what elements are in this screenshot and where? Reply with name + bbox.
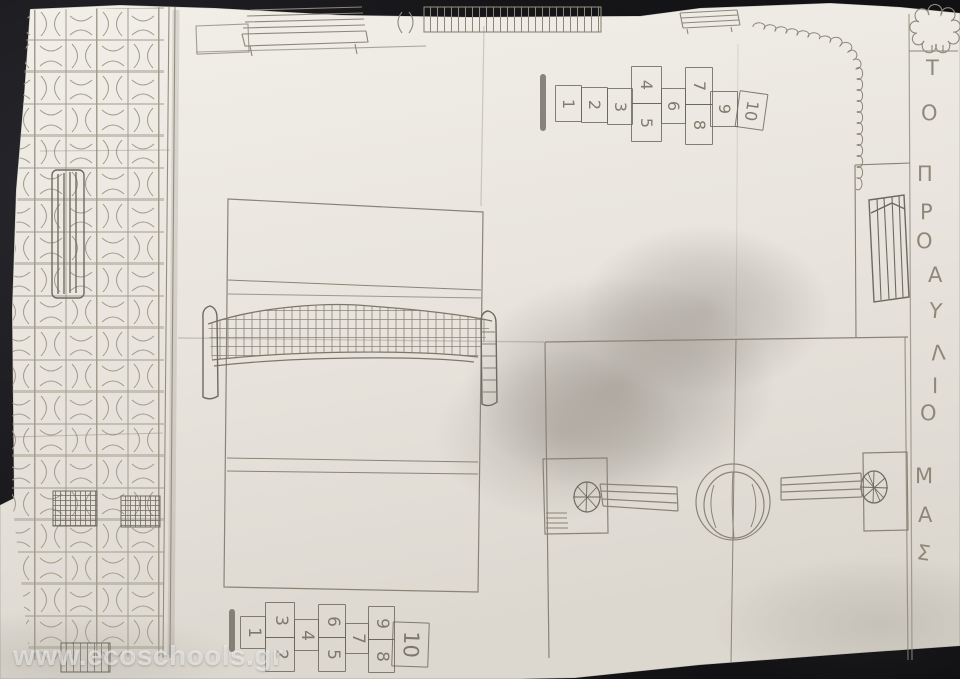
title-letter: Ο <box>920 403 937 424</box>
hopscotch-cell: 5 <box>318 637 346 672</box>
hopscotch-cell: 9 <box>368 606 395 640</box>
hopscotch-cell: 7 <box>345 623 369 654</box>
hopscotch-number: 8 <box>691 119 707 129</box>
hopscotch-cell: 8 <box>685 104 713 145</box>
hopscotch-number: 1 <box>244 627 261 638</box>
title-letter: Ι <box>932 376 938 397</box>
title-letter: Υ <box>928 300 943 322</box>
hopscotch-cell: 6 <box>318 604 346 638</box>
hopscotch-cell: 1 <box>555 85 582 122</box>
tiled-path <box>12 7 175 660</box>
hopscotch-number: 3 <box>271 615 288 626</box>
hopscotch-number: 9 <box>716 104 732 114</box>
photo-of-schoolyard-drawing: 1 2 3 4 5 6 7 8 9 10 1 2 3 4 5 6 7 8 9 1… <box>0 0 960 679</box>
hopscotch-cell: 4 <box>294 619 319 651</box>
title-letter: Α <box>928 265 942 286</box>
hopscotch-number: 5 <box>639 117 655 127</box>
hopscotch-cell: 2 <box>581 87 608 123</box>
hopscotch-cell: 3 <box>607 88 633 125</box>
title-letter: Π <box>917 164 933 185</box>
hopscotch-cell: 7 <box>685 67 713 105</box>
hopscotch-number: 7 <box>348 633 365 644</box>
drawing-svg <box>0 0 960 679</box>
hopscotch-cell: 5 <box>631 103 662 142</box>
hopscotch-cell: 3 <box>265 602 295 638</box>
title-letter: Ο <box>916 231 933 252</box>
fence-grate <box>424 7 601 32</box>
hopscotch-cell: 6 <box>661 88 686 124</box>
title-letter: Μ <box>915 466 933 487</box>
title-letter: Ο <box>921 103 938 124</box>
hopscotch-cell: 10 <box>391 621 430 667</box>
hopscotch-number: 3 <box>612 101 628 111</box>
title-letter: Τ <box>926 58 939 79</box>
hopscotch-number: 6 <box>323 616 340 627</box>
title-letter: Λ <box>930 342 946 364</box>
hopscotch-number: 5 <box>323 649 340 660</box>
title-letter: Ρ <box>920 202 933 223</box>
hopscotch-number: 7 <box>691 81 707 91</box>
hopscotch-number: 4 <box>639 80 655 90</box>
hopscotch-cell: 4 <box>631 66 662 104</box>
hopscotch-number: 8 <box>373 651 390 662</box>
title-letter: Α <box>918 505 932 526</box>
hopscotch-number: 1 <box>561 98 577 108</box>
hopscotch-number: 2 <box>587 100 603 110</box>
hopscotch-top-pole <box>540 74 546 131</box>
hopscotch-number: 9 <box>373 618 390 629</box>
hopscotch-cell: 10 <box>735 90 769 131</box>
hopscotch-number: 6 <box>666 101 682 111</box>
hopscotch-number: 10 <box>742 99 761 121</box>
hopscotch-number: 10 <box>400 631 422 658</box>
hopscotch-cell: 9 <box>710 91 738 127</box>
watermark: www.ecoschools.gr <box>13 640 283 672</box>
hopscotch-number: 4 <box>298 630 315 641</box>
